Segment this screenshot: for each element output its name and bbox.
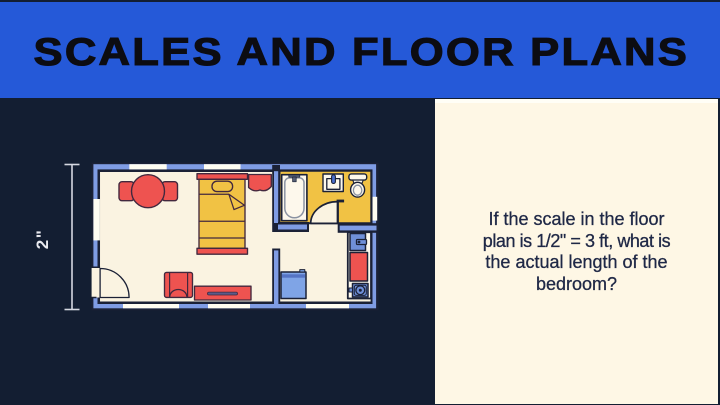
svg-text:2": 2" (33, 229, 52, 250)
